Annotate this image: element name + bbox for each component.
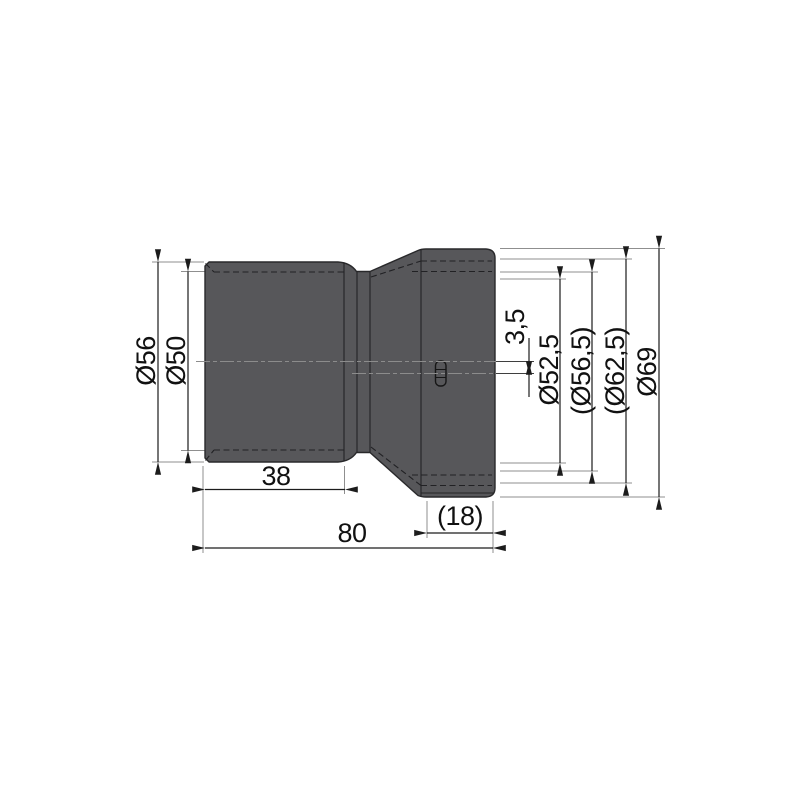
- dim-label-spigot-length: 38: [261, 461, 290, 491]
- dim-label-outer-diameter-left: Ø56: [131, 336, 161, 386]
- dim-label-axis-offset: 3,5: [500, 309, 530, 345]
- dim-label-overall-length: 80: [337, 518, 366, 548]
- drawing-canvas: Ø56 Ø50 3,5 Ø52,5 (Ø56,5) (Ø62,5) Ø69 38…: [0, 0, 800, 800]
- dim-label-socket-depth: (18): [437, 501, 483, 531]
- dim-label-socket-bore-diameter: Ø52,5: [534, 334, 564, 405]
- dim-label-socket-outer-bore-diameter: (Ø62,5): [600, 327, 630, 415]
- dim-label-bore-diameter-left: Ø50: [161, 336, 191, 386]
- dim-label-outer-diameter-right: Ø69: [632, 347, 662, 397]
- technical-drawing: Ø56 Ø50 3,5 Ø52,5 (Ø56,5) (Ø62,5) Ø69 38…: [0, 0, 800, 800]
- dim-label-socket-middle-diameter: (Ø56,5): [566, 327, 596, 415]
